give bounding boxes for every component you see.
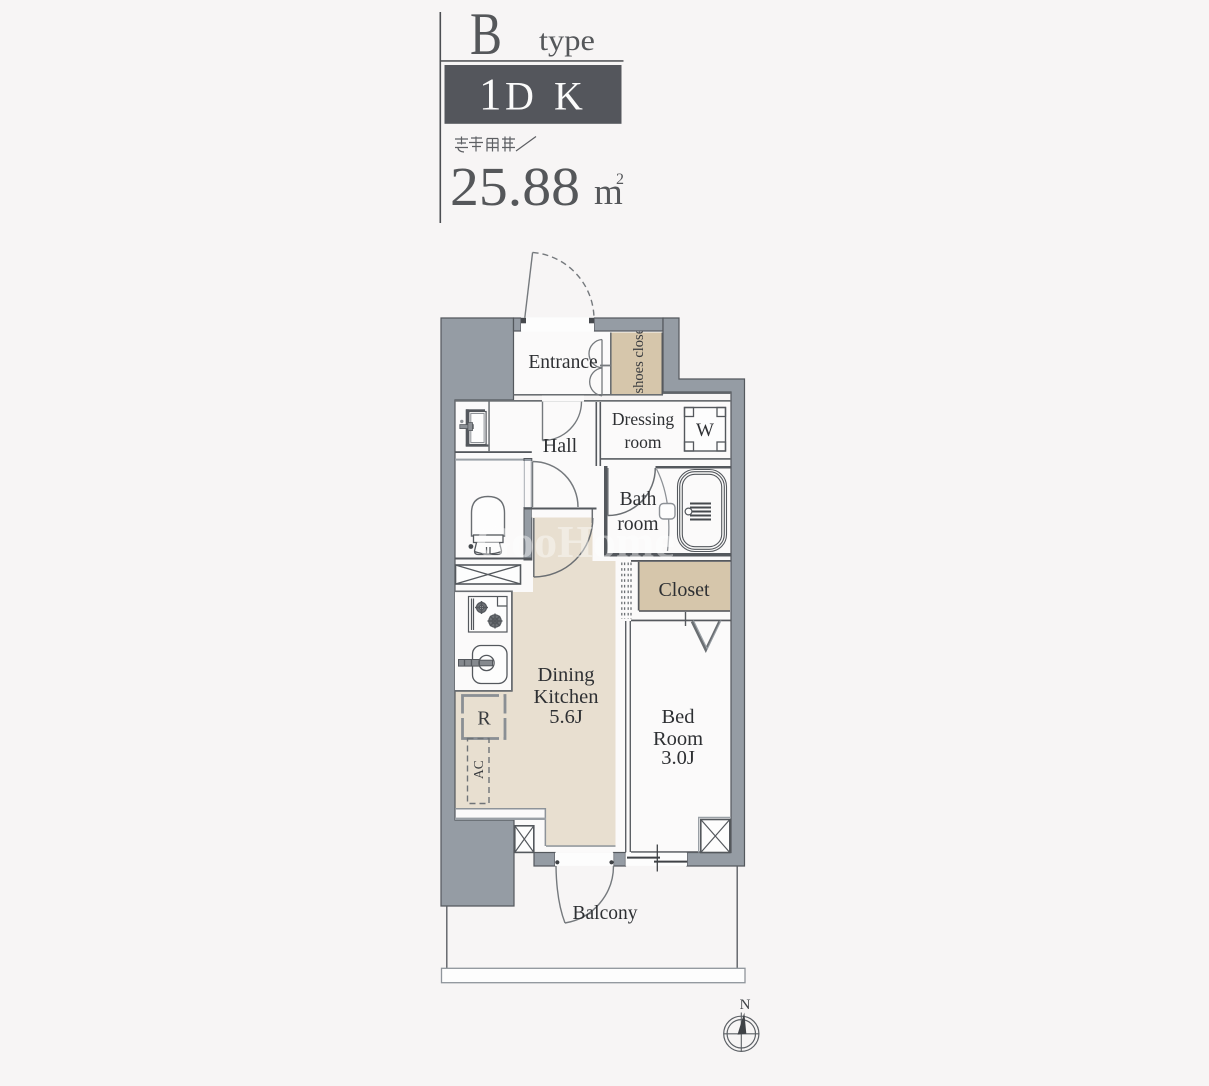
- svg-text:D: D: [505, 74, 534, 119]
- svg-text:AC: AC: [471, 760, 486, 779]
- svg-text:Hall: Hall: [543, 435, 578, 457]
- svg-text:shoes closet: shoes closet: [631, 324, 647, 394]
- svg-text:Closet: Closet: [658, 579, 710, 601]
- svg-text:Bath: Bath: [620, 489, 657, 510]
- svg-text:Dressing: Dressing: [612, 409, 674, 429]
- svg-text:B: B: [470, 1, 502, 67]
- svg-text:5.6J: 5.6J: [549, 706, 583, 728]
- svg-text:Balcony: Balcony: [573, 903, 638, 924]
- svg-text:2: 2: [616, 171, 624, 188]
- svg-text:N: N: [740, 997, 751, 1013]
- svg-text:25.88: 25.88: [450, 156, 580, 217]
- svg-text:R: R: [477, 708, 491, 730]
- svg-text:3.0J: 3.0J: [661, 747, 695, 769]
- svg-text:type: type: [539, 24, 595, 57]
- svg-text:W: W: [696, 420, 714, 441]
- svg-text:room: room: [625, 432, 662, 452]
- svg-text:K: K: [554, 74, 583, 119]
- svg-text:Dining: Dining: [538, 664, 595, 686]
- svg-text:1: 1: [479, 70, 502, 120]
- svg-text:GooHome: GooHome: [475, 516, 674, 567]
- svg-text:Entrance: Entrance: [528, 352, 597, 373]
- svg-text:Kitchen: Kitchen: [534, 686, 599, 708]
- svg-text:Bed: Bed: [661, 706, 694, 728]
